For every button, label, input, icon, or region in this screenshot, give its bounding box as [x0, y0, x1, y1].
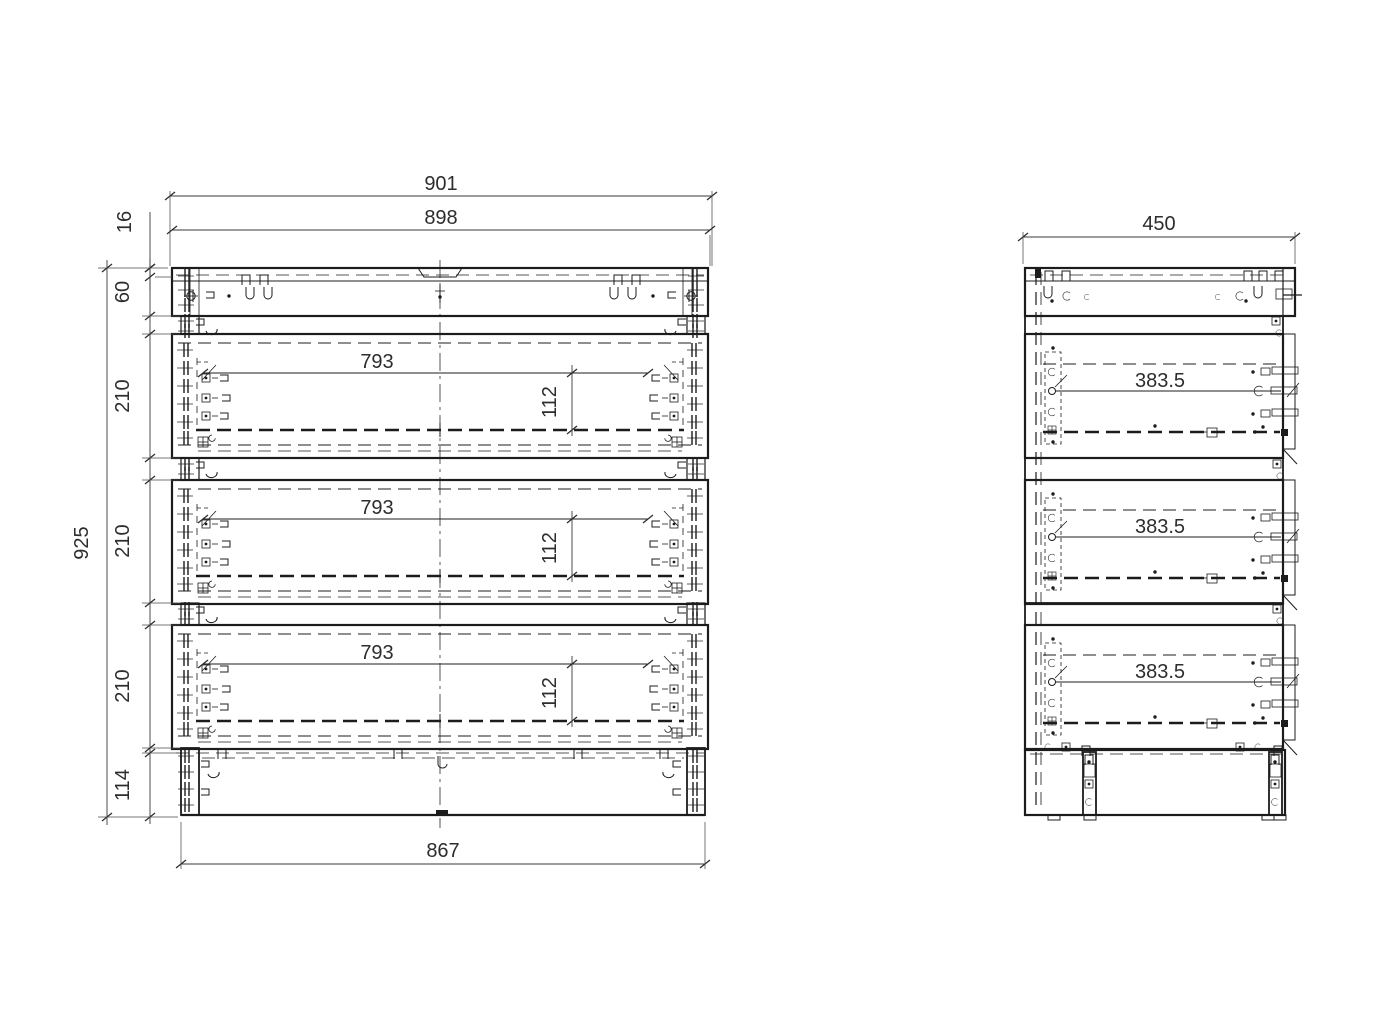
dim-base-width-label: 867	[426, 840, 459, 862]
side-drawer-3	[1025, 625, 1299, 755]
furniture-technical-drawing: 901 898 16 60 210 210 210 114	[0, 0, 1376, 1032]
dim-base-height-label: 114	[112, 769, 134, 801]
dim-drawer1-height-label: 210	[112, 379, 134, 412]
front-plinth	[176, 748, 705, 815]
side-rail-2	[1025, 458, 1283, 480]
dim-drawer2-inner-width-label: 793	[360, 497, 393, 519]
dim-drawer1-inner-depth-label: 383.5	[1135, 370, 1185, 392]
front-view-dimensions: 901 898 16 60 210 210 210 114	[71, 173, 717, 869]
side-top-rail	[1025, 268, 1302, 316]
dim-top-width-label: 901	[424, 173, 457, 195]
dim-drawer2-inner-height-label: 112	[539, 532, 561, 564]
dim-top-rail-height-label: 60	[112, 281, 134, 303]
side-view	[1025, 268, 1302, 820]
dim-carcass-width-label: 898	[424, 207, 457, 229]
dim-drawer3-inner-depth-label: 383.5	[1135, 661, 1185, 683]
dim-drawer3-inner-height-label: 112	[539, 677, 561, 709]
dim-depth-label: 450	[1142, 213, 1175, 235]
front-view	[172, 260, 708, 828]
technical-drawing-page: 901 898 16 60 210 210 210 114	[0, 0, 1376, 1032]
dim-drawer3-inner-width-label: 793	[360, 642, 393, 664]
dim-drawer1-inner-height-label: 112	[539, 386, 561, 418]
dim-top-thickness-label: 16	[114, 211, 136, 233]
side-plinth	[1025, 743, 1286, 820]
dim-drawer2-inner-depth-label: 383.5	[1135, 516, 1185, 538]
dim-drawer1-inner-width-label: 793	[360, 351, 393, 373]
dim-drawer2-height-label: 210	[112, 524, 134, 557]
front-rail-gap-3	[178, 602, 705, 626]
front-rail-gap-2	[178, 457, 705, 481]
side-rail-3	[1025, 603, 1283, 625]
side-drawer-1	[1025, 334, 1299, 464]
dim-overall-height-label: 925	[71, 526, 93, 559]
side-drawer-2	[1025, 480, 1299, 610]
side-view-dimensions: 450 383.5 383.5 383.5	[1018, 213, 1300, 683]
dim-drawer3-height-label: 210	[112, 669, 134, 702]
